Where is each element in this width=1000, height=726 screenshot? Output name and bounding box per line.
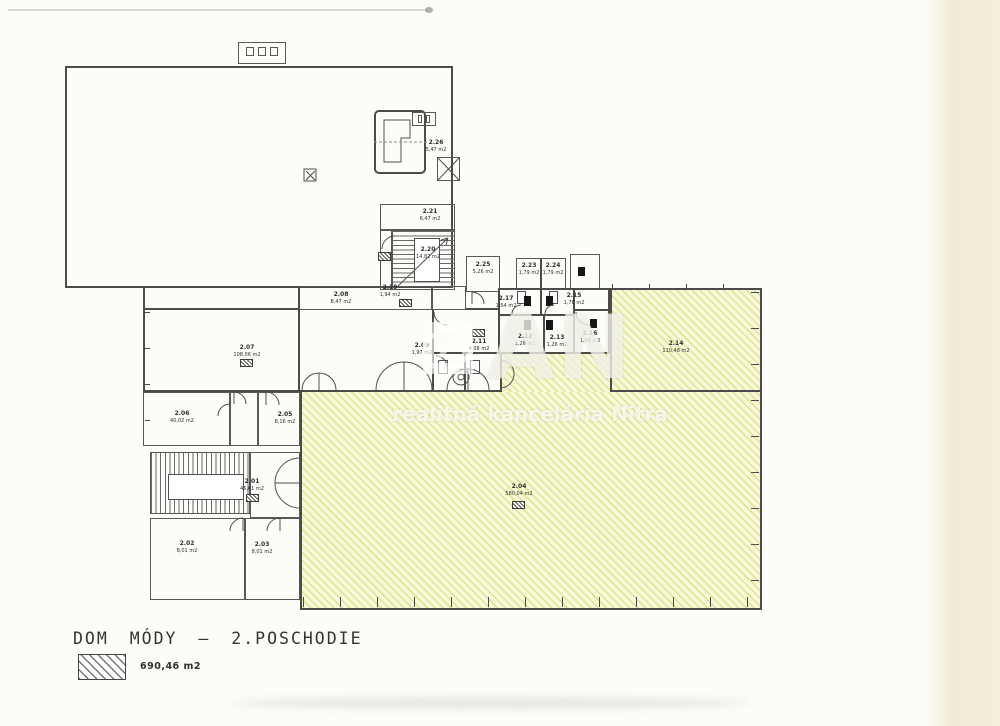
door-arc [302, 373, 319, 390]
door-arc [500, 374, 514, 388]
room-label: 2.091,97 m2 [404, 342, 440, 356]
room-label: 2.121,26 m2 [507, 333, 543, 347]
shaft-cross-icon [438, 158, 459, 180]
door-arc [218, 404, 230, 416]
spiral-column-core [458, 374, 464, 380]
door-arc [376, 362, 404, 390]
plan-title: DOM MÓDY – 2.POSCHODIE [73, 629, 363, 648]
room-label: 2.088,47 m2 [323, 291, 359, 305]
door-arc [576, 312, 589, 325]
door-arc [275, 483, 300, 508]
room-label: 2.058,16 m2 [267, 411, 303, 425]
door-arc [234, 392, 246, 404]
door-arc [545, 305, 554, 314]
room-label: 2.07108,06 m2 [227, 344, 267, 358]
room-label: 2.241,79 m2 [535, 262, 571, 276]
door-arc [436, 356, 447, 367]
door-arc [382, 236, 395, 249]
room-label: 2.028,01 m2 [169, 540, 205, 554]
plan-linework [0, 0, 1000, 726]
door-arc [267, 518, 280, 531]
room-label: 2.14110,48 m2 [656, 340, 696, 354]
room-label: 2.0640,02 m2 [164, 410, 200, 424]
door-arc [319, 373, 336, 390]
room-label: 2.04580,04 m2 [499, 483, 539, 497]
scanned-floor-plan-page: 2.265,47 m2 2.216,47 m2 2.2014,82 m2 2.1… [0, 0, 1000, 726]
door-arc [230, 518, 243, 531]
door-arc [447, 369, 468, 390]
room-label: 2.131,26 m2 [539, 334, 575, 348]
legend-area-value: 690,46 m2 [140, 661, 201, 672]
door-arc [404, 362, 432, 390]
room-label: 2.171,54 m2 [488, 295, 524, 309]
door-arc [500, 360, 514, 374]
room-label: 2.265,47 m2 [418, 139, 454, 153]
column-cross-icon [306, 171, 315, 180]
room-label: 2.161,58 m2 [572, 330, 608, 344]
legend-hatch-swatch [78, 654, 126, 680]
door-arc [472, 292, 484, 304]
room-label: 2.038,01 m2 [244, 541, 280, 555]
room-label: 2.216,47 m2 [412, 208, 448, 222]
door-arc [275, 458, 300, 483]
door-arc [468, 369, 489, 390]
room-label: 2.114,08 m2 [461, 338, 497, 352]
machine-outline [384, 120, 410, 162]
room-label: 2.255,26 m2 [465, 261, 501, 275]
spiral-column [453, 369, 469, 385]
room-label: 2.151,78 m2 [556, 292, 592, 306]
room-label: 2.2014,82 m2 [410, 246, 446, 260]
door-arc [434, 312, 447, 325]
door-arc [266, 392, 279, 405]
room-label: 2.191,94 m2 [372, 284, 408, 298]
room-label: 2.0146,61 m2 [234, 478, 270, 492]
